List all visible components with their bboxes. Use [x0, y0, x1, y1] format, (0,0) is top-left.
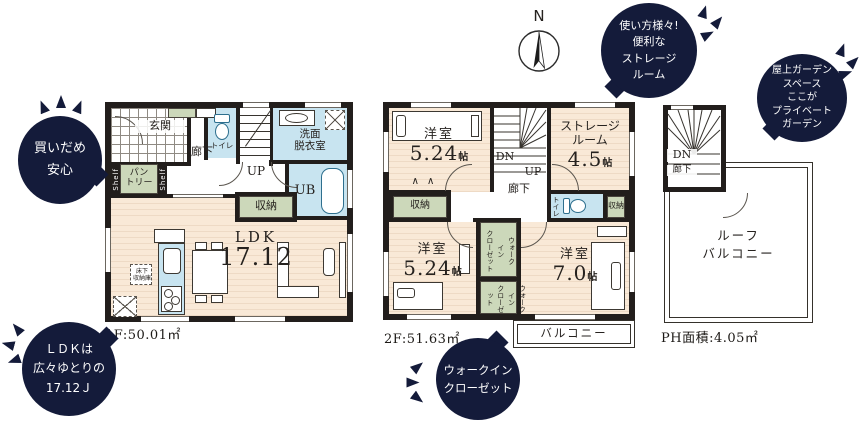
toilet1f-label: トイレ: [208, 142, 236, 151]
hatch-icon: [113, 296, 137, 317]
pantry-label: パントリー: [120, 168, 158, 189]
storage1f-label: 収納: [239, 200, 293, 213]
sink-bowl-icon: [285, 113, 308, 123]
toilet-bowl-icon: [215, 123, 229, 140]
emphasis-mark: [410, 391, 426, 407]
emphasis-mark: [6, 354, 22, 368]
emphasis-mark: [846, 53, 860, 69]
window-mark: [105, 228, 111, 272]
shelf-label: Shelf: [159, 168, 167, 191]
toilet-tank-icon: [214, 114, 230, 123]
underfloor-storage-label: 床下収納庫: [131, 268, 153, 282]
shelf-box: [196, 108, 216, 118]
sofa-icon: [277, 286, 319, 298]
washroom-label: 洗面脱衣室: [273, 128, 347, 152]
floor2-area-label: 2F:51.63㎡: [384, 328, 460, 347]
burner-icon: [164, 302, 173, 311]
emphasis-mark: [697, 4, 711, 19]
emphasis-mark: [710, 13, 726, 29]
callout-stock-up: 買いだめ安心: [18, 116, 102, 204]
callout-wic: ウォークインクローゼット: [436, 338, 520, 420]
window-mark: [305, 102, 341, 108]
kitchen-counter-top: [154, 229, 185, 243]
emphasis-mark: [72, 99, 86, 115]
compass: N: [515, 8, 563, 78]
pillow-icon: [397, 288, 415, 298]
storage-room-label: ストレージルーム: [551, 120, 629, 148]
up2f-label: UP: [519, 166, 547, 179]
sliding-door-mark: [173, 194, 223, 198]
toilet2f-label: トイレ: [552, 195, 559, 217]
balcony-2f: バルコニー: [513, 320, 635, 348]
window-mark: [629, 252, 635, 292]
ph-stair-box: DN 廊下: [663, 105, 726, 192]
closet-east-label: 収納: [607, 201, 625, 210]
window-mark: [383, 252, 389, 296]
ldk-size-label: 17.12: [191, 244, 321, 272]
tv-icon: [339, 242, 346, 298]
up1f-label: UP: [239, 165, 273, 179]
callout-storage-room: 使い方様々!便利な ストレージルーム: [601, 3, 697, 98]
closet-west-label: 収納: [393, 200, 447, 212]
window-mark: [243, 102, 269, 108]
window-mark: [347, 234, 353, 292]
dn2f-label: DN: [492, 151, 518, 164]
window-mark: [671, 105, 693, 110]
ub-label: UB: [289, 184, 321, 199]
compass-n-label: N: [515, 8, 563, 25]
window-mark: [575, 102, 615, 108]
emphasis-mark: [36, 99, 50, 115]
emphasis-mark: [9, 320, 25, 336]
wic2-label: ウォークインクローゼット: [484, 283, 527, 314]
wic2-room: ウォークインクローゼット: [480, 281, 517, 314]
side-table-icon: [323, 248, 335, 276]
roof-balcony-label: ルーフバルコニー: [665, 227, 812, 262]
toilet-bowl-icon: [570, 199, 586, 213]
kitchen-sink-icon: [163, 248, 181, 274]
callout-ldk: ＬＤＫは広々ゆとりの17.12Ｊ: [22, 322, 116, 416]
ph-area-label: PH面積:4.05㎡: [661, 327, 758, 346]
ph-dn-label: DN: [667, 149, 697, 162]
emphasis-mark: [700, 27, 716, 42]
window-mark: [629, 132, 635, 176]
desk-icon: [597, 226, 627, 237]
shelf-box: [168, 108, 196, 118]
window-mark: [383, 132, 389, 172]
emphasis-mark: [835, 42, 849, 58]
chair-icon: [211, 295, 223, 303]
balcony-label: バルコニー: [514, 327, 634, 340]
callout-roof-garden: 屋上ガーデンスペースここが プライベートガーデン: [757, 54, 847, 142]
window-mark: [411, 102, 451, 108]
window-mark: [235, 316, 285, 322]
storage-room-size: 4.5帖: [551, 148, 629, 171]
genkan-label: 玄関: [135, 120, 185, 133]
washing-machine-icon: [325, 110, 345, 130]
hall2f-label: 廊下: [501, 183, 537, 196]
shelf-label: Shelf: [112, 168, 120, 191]
underfloor-storage: 床下収納庫: [130, 264, 152, 285]
window-mark: [347, 170, 353, 208]
pantry-shelf-right: Shelf: [158, 164, 167, 194]
wic1-label: ウォークインクローゼット: [484, 227, 517, 275]
bedroom-se-size: 7.0帖: [521, 262, 629, 285]
compass-icon: [515, 26, 563, 76]
floor1-plan: Shelf Shelf パントリー 収納: [105, 102, 353, 322]
bedroom-nw-size: 5.24帖: [389, 142, 489, 165]
emphasis-mark: [56, 95, 66, 108]
window-mark: [141, 316, 189, 322]
toilet-tank-icon: [563, 198, 570, 214]
chair-icon: [195, 295, 207, 303]
ph-hall-label: 廊下: [667, 165, 697, 176]
window-mark: [407, 314, 451, 320]
wic1-room: ウォークインクローゼット: [480, 222, 517, 277]
emphasis-mark: [407, 378, 420, 388]
emphasis-mark: [0, 338, 15, 351]
bathtub-icon: [321, 168, 344, 214]
floorplan-page: N Shelf Shelf パントリー: [0, 0, 860, 423]
floor2-plan: 収納 トイレ 収納 ウォークインクローゼット ウォークインクローゼット ∧∧: [383, 102, 635, 320]
emphasis-mark: [410, 358, 426, 374]
pantry-shelf-left: Shelf: [111, 164, 120, 194]
bedroom-sw-size: 5.24帖: [389, 257, 476, 280]
door-gap: [521, 218, 547, 222]
